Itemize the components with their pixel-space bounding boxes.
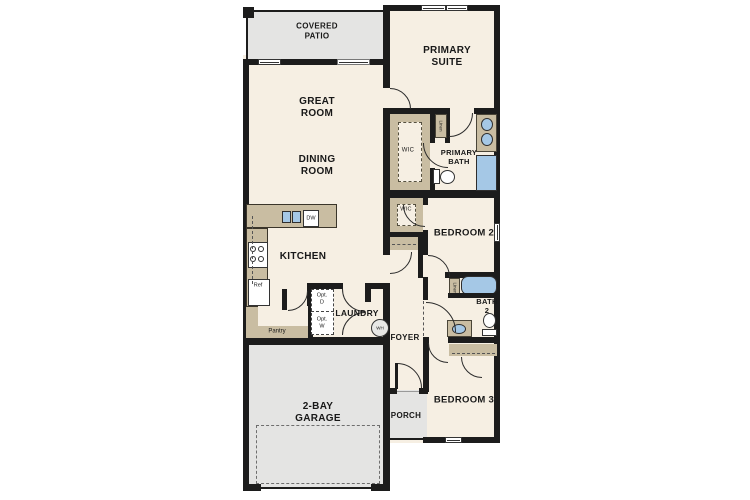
bedroom3-door-arc (428, 343, 448, 363)
garage-door-bays (256, 425, 380, 484)
slider-door-patio (337, 59, 370, 65)
bath2-label: BATH 2 (476, 297, 497, 315)
bed3-closet-shelf (449, 344, 497, 356)
wall-kitchen-bottom (243, 337, 390, 345)
primary-sink-2 (481, 133, 493, 146)
garage-label: 2-BAY GARAGE (295, 401, 341, 425)
burner-4 (258, 256, 264, 262)
dishwasher-label: DW (306, 216, 315, 223)
window-suite-top-1 (421, 5, 446, 11)
linen-bath2-label: Linen (453, 282, 458, 293)
front-door-arc (397, 363, 422, 388)
patio-edge-top (246, 10, 387, 12)
bedroom3-label: BEDROOM 3 (434, 394, 494, 405)
covered-patio-label: COVERED PATIO (296, 21, 338, 40)
bath2-toilet-tank (482, 329, 497, 336)
primary-toilet-tank (433, 169, 440, 184)
foyer-label: FOYER (390, 333, 419, 343)
wall-bed2-left-a (423, 190, 428, 205)
coat-closet-rod (392, 244, 416, 245)
hall-ceiling-break (423, 301, 425, 336)
wic2-label: WIC (400, 207, 412, 214)
pantry-label: Pantry (268, 328, 285, 335)
wall-garage-left (243, 337, 249, 491)
porch-label: PORCH (391, 411, 421, 421)
primary-bath-label: PRIMARY BATH (441, 148, 477, 166)
water-heater-label: WH (376, 325, 384, 330)
wall-foyer-bottom-b (419, 388, 428, 394)
kitchen-label: KITCHEN (280, 251, 327, 263)
refrigerator-label: Ref (254, 283, 263, 290)
primary-shower (476, 155, 497, 191)
front-door-leaf (395, 363, 398, 389)
wall-bed2-left-c (423, 277, 428, 300)
great-room-label: GREAT ROOM (299, 96, 335, 120)
porch-edge-bottom (388, 438, 425, 440)
kitchen-sink-basin-1 (282, 211, 291, 223)
primary-sink-1 (481, 118, 493, 131)
wall-bed3-bottom-b (462, 437, 500, 443)
window-suite-top-2 (446, 5, 468, 11)
kitchen-optional-line (252, 216, 254, 284)
primary-bath-door-arc (449, 113, 473, 137)
wall-garage-bottom-l (243, 484, 261, 491)
garage-door-sill (261, 487, 371, 489)
primary-suite-label: PRIMARY SUITE (423, 45, 471, 69)
laundry-label: LAUNDRY (335, 308, 378, 318)
front-door-sill (397, 391, 419, 392)
linen-primary-label: Linen (439, 120, 444, 131)
pantry-hall-door-arc (288, 291, 308, 311)
floorplan: COVERED PATIO PRIMARY SUITE GREAT ROOM D… (0, 0, 750, 500)
patio-post (243, 7, 254, 18)
wall-bed2-left-b (423, 230, 428, 255)
wall-greatroom-top-b (281, 59, 337, 65)
window-greatroom-top (258, 59, 281, 65)
primary-toilet-bowl (440, 170, 455, 184)
wall-suite-left (383, 5, 390, 88)
kitchen-sink-basin-2 (292, 211, 301, 223)
wall-greatroom-top-a (243, 59, 258, 65)
window-bedroom2-right (494, 223, 500, 242)
bath2-toilet-bowl (483, 313, 496, 328)
window-bed3-bottom (445, 437, 462, 443)
optional-washer-label: Opt. W (317, 316, 327, 329)
bedroom2-label: BEDROOM 2 (434, 227, 494, 238)
suite-door-arc (390, 88, 411, 109)
opt-box-divider (311, 311, 334, 312)
wall-laundry-stub (365, 289, 371, 302)
wic-primary-label: WIC (402, 147, 415, 154)
coat-closet-door-arc (390, 252, 412, 274)
burner-2 (258, 246, 264, 252)
bed3-closet-door-arc (461, 357, 482, 378)
bedroom2-door-arc (428, 255, 450, 277)
wall-bed3-bottom-a (423, 437, 445, 443)
optional-dryer-label: Opt. D (317, 292, 327, 305)
bath2-door-arc (426, 302, 456, 332)
wall-bed2-top (383, 190, 500, 198)
bed3-closet-rod (452, 353, 495, 354)
wall-bed3-top (448, 337, 500, 343)
wall-pantry-stub (282, 289, 287, 310)
dining-room-label: DINING ROOM (299, 154, 336, 178)
